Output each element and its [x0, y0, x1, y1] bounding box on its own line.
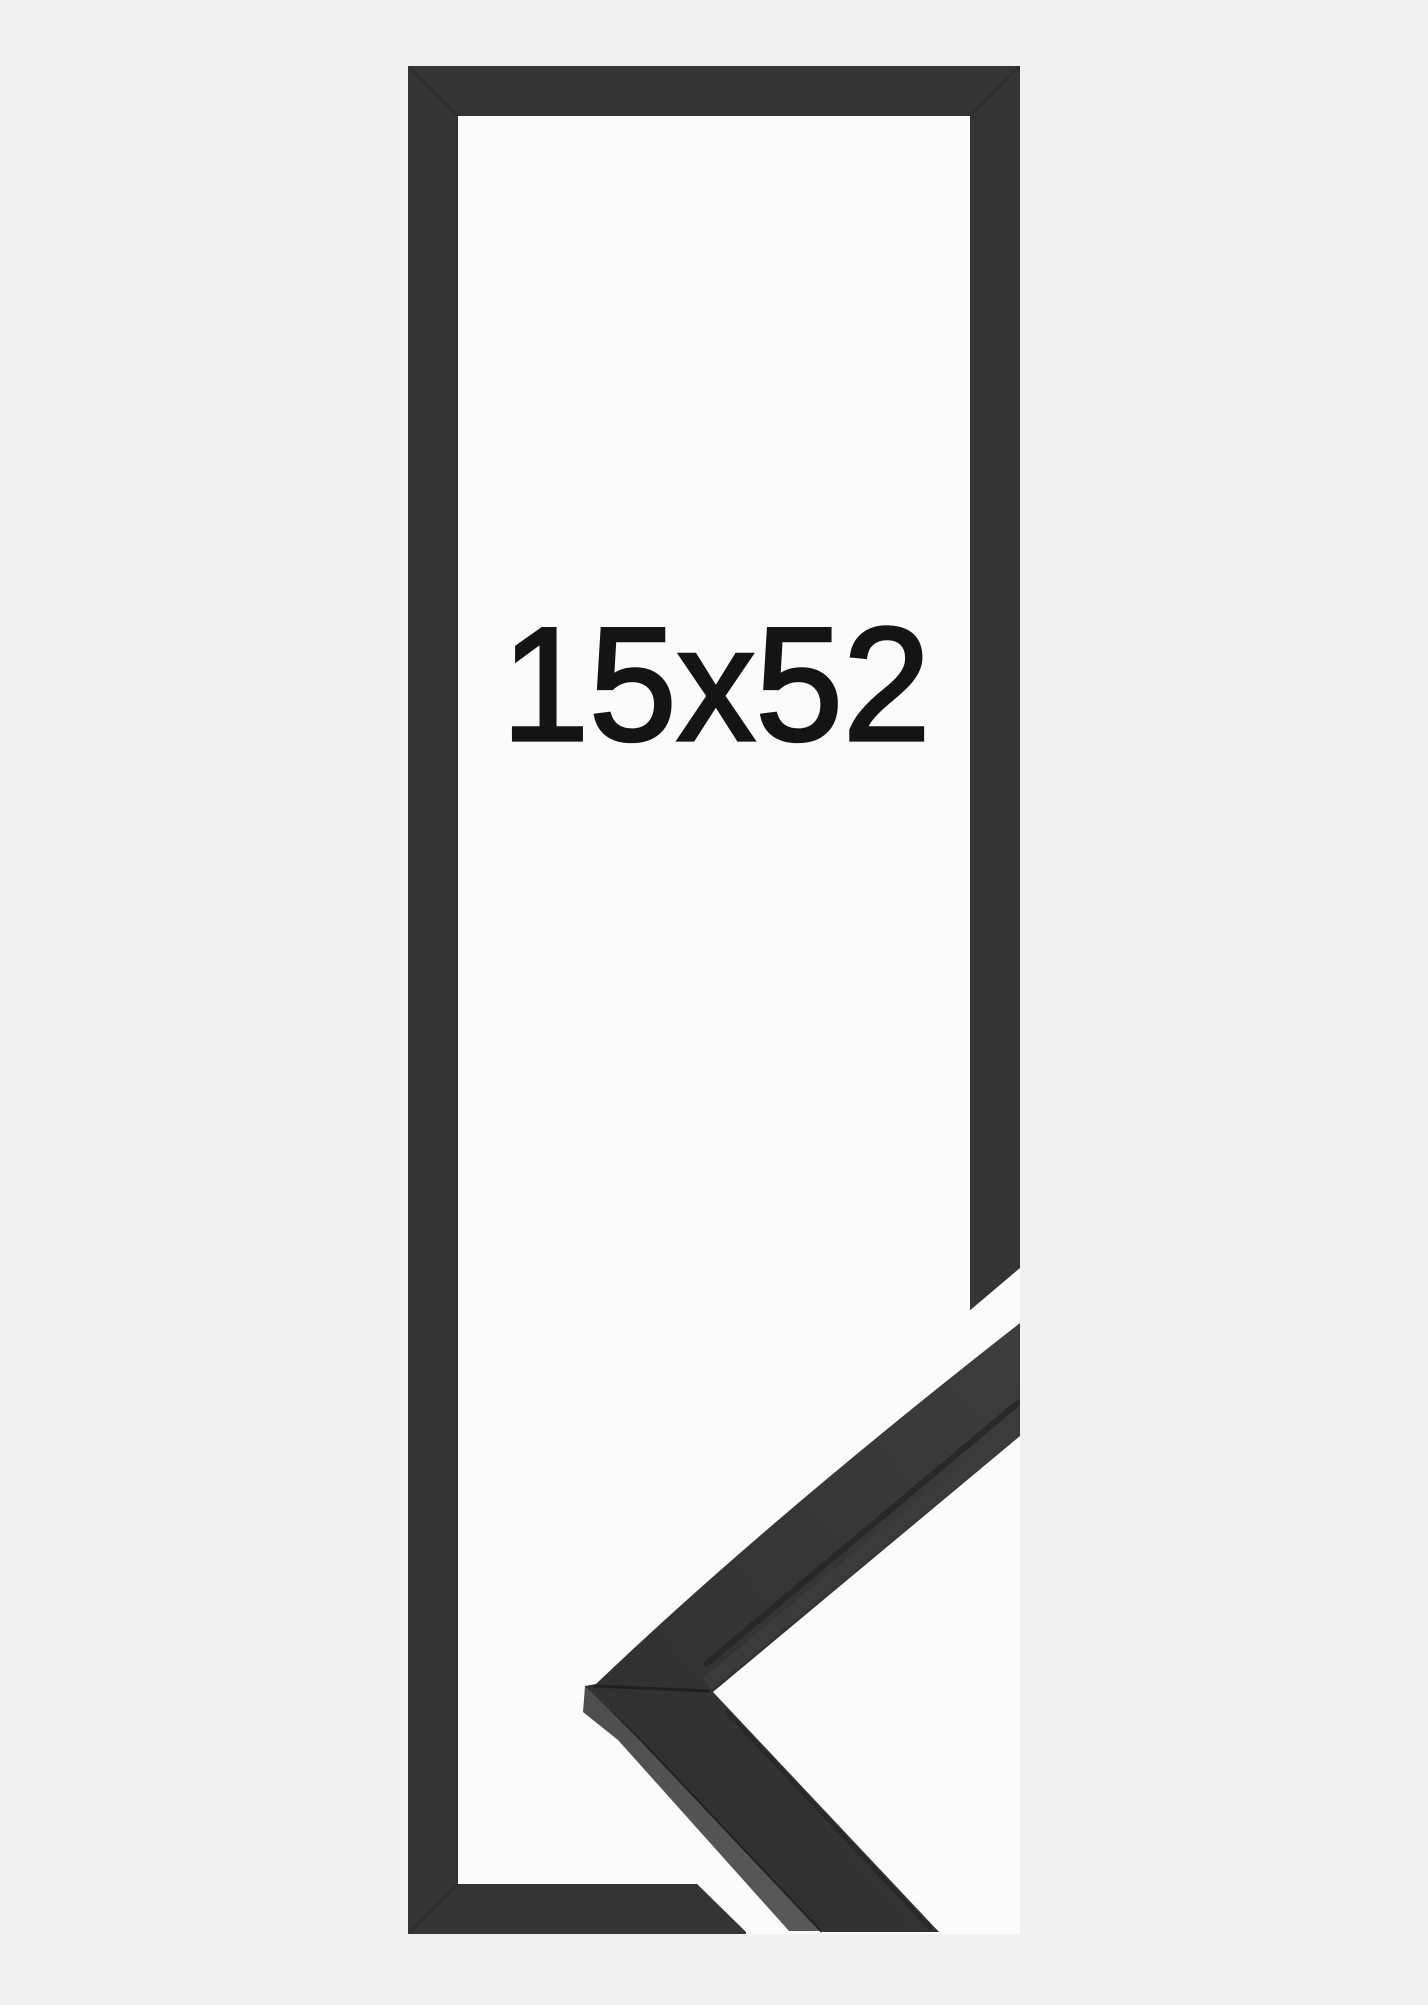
svg-text:15x52: 15x52: [502, 594, 931, 775]
